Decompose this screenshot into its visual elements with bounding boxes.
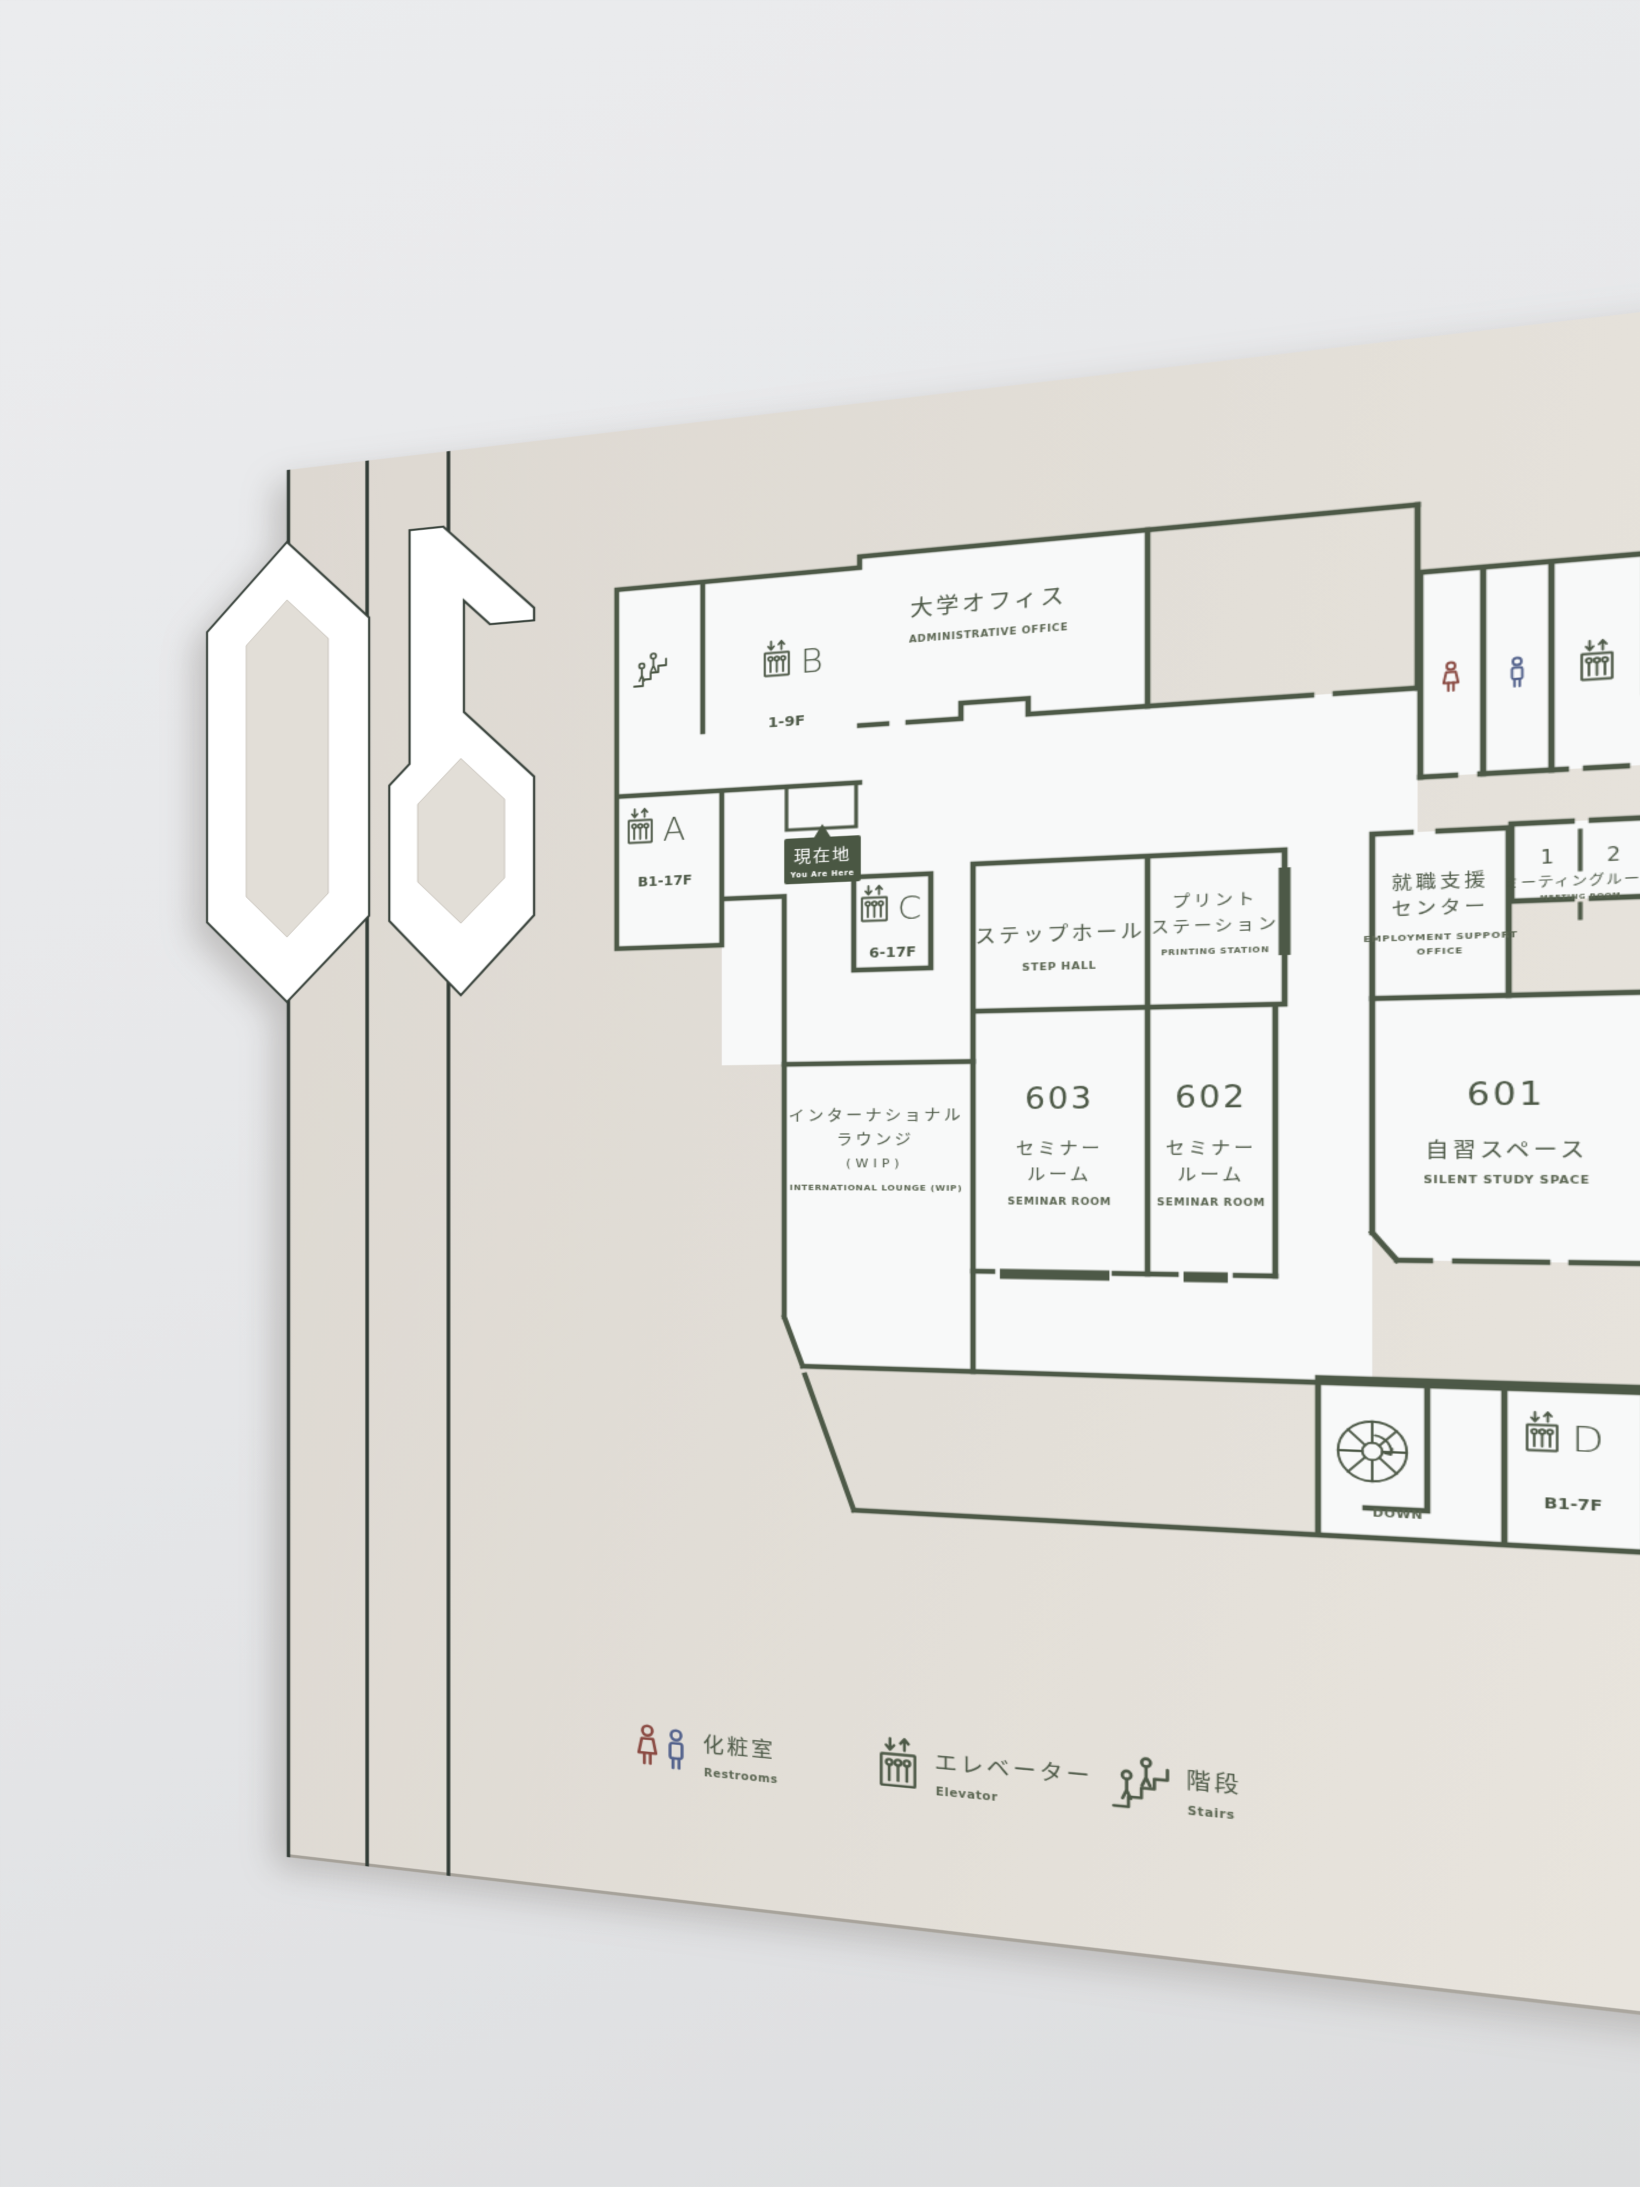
seminar603-jp1: セミナー — [1016, 1139, 1103, 1159]
seminar602-number: 602 — [1175, 1080, 1247, 1116]
seminar602-en: SEMINAR ROOM — [1157, 1196, 1266, 1208]
employment-jp2: センター — [1391, 896, 1488, 920]
elevator-d-letter: D — [1572, 1419, 1604, 1461]
elevator-a-floors: B1-17F — [638, 872, 692, 890]
panel-artwork: 06 — [172, 269, 1640, 2059]
seminar602-jp2: ルーム — [1177, 1165, 1245, 1185]
numeral-six — [389, 517, 534, 997]
lounge-jp2: ラウンジ — [836, 1131, 914, 1149]
employment-en2: OFFICE — [1416, 945, 1463, 957]
legend-stairs-jp: 階段 — [1186, 1769, 1242, 1799]
seminar603-number: 603 — [1025, 1082, 1094, 1117]
lounge-jp3: (WIP) — [846, 1156, 904, 1171]
elevator-d-floors: B1-7F — [1544, 1495, 1603, 1515]
floor-map-panel: 06 — [172, 269, 1640, 2059]
lounge-jp1: インターナショナル — [789, 1106, 964, 1125]
printing-station-jp1: プリント — [1172, 889, 1258, 911]
lounge-en: INTERNATIONAL LOUNGE (WIP) — [790, 1182, 963, 1193]
meeting-room-1: 1 — [1540, 847, 1557, 869]
meeting-room-2: 2 — [1607, 844, 1624, 866]
employment-jp1: 就職支援 — [1391, 869, 1488, 894]
study601-number: 601 — [1467, 1076, 1546, 1114]
study601-en: SILENT STUDY SPACE — [1423, 1175, 1590, 1188]
you-are-here-jp: 現在地 — [794, 845, 851, 867]
elevator-b-letter: B — [800, 641, 823, 680]
elevator-c-floors: 6-17F — [869, 944, 916, 961]
numeral-zero-counter — [246, 596, 328, 938]
photo-of-floor-sign: 06 — [0, 0, 1640, 2187]
seminar603-en: SEMINAR ROOM — [1008, 1195, 1112, 1207]
elevator-b-floors: 1-9F — [768, 713, 805, 732]
seminar602-jp1: セミナー — [1166, 1138, 1257, 1158]
spiral-down-label: DOWN — [1373, 1507, 1424, 1523]
seminar603-jp2: ルーム — [1027, 1165, 1092, 1185]
elevator-a-letter: A — [663, 810, 686, 848]
step-hall-en: STEP HALL — [1022, 961, 1097, 975]
elevator-c-letter: C — [897, 889, 921, 927]
study601-jp: 自習スペース — [1425, 1138, 1588, 1162]
